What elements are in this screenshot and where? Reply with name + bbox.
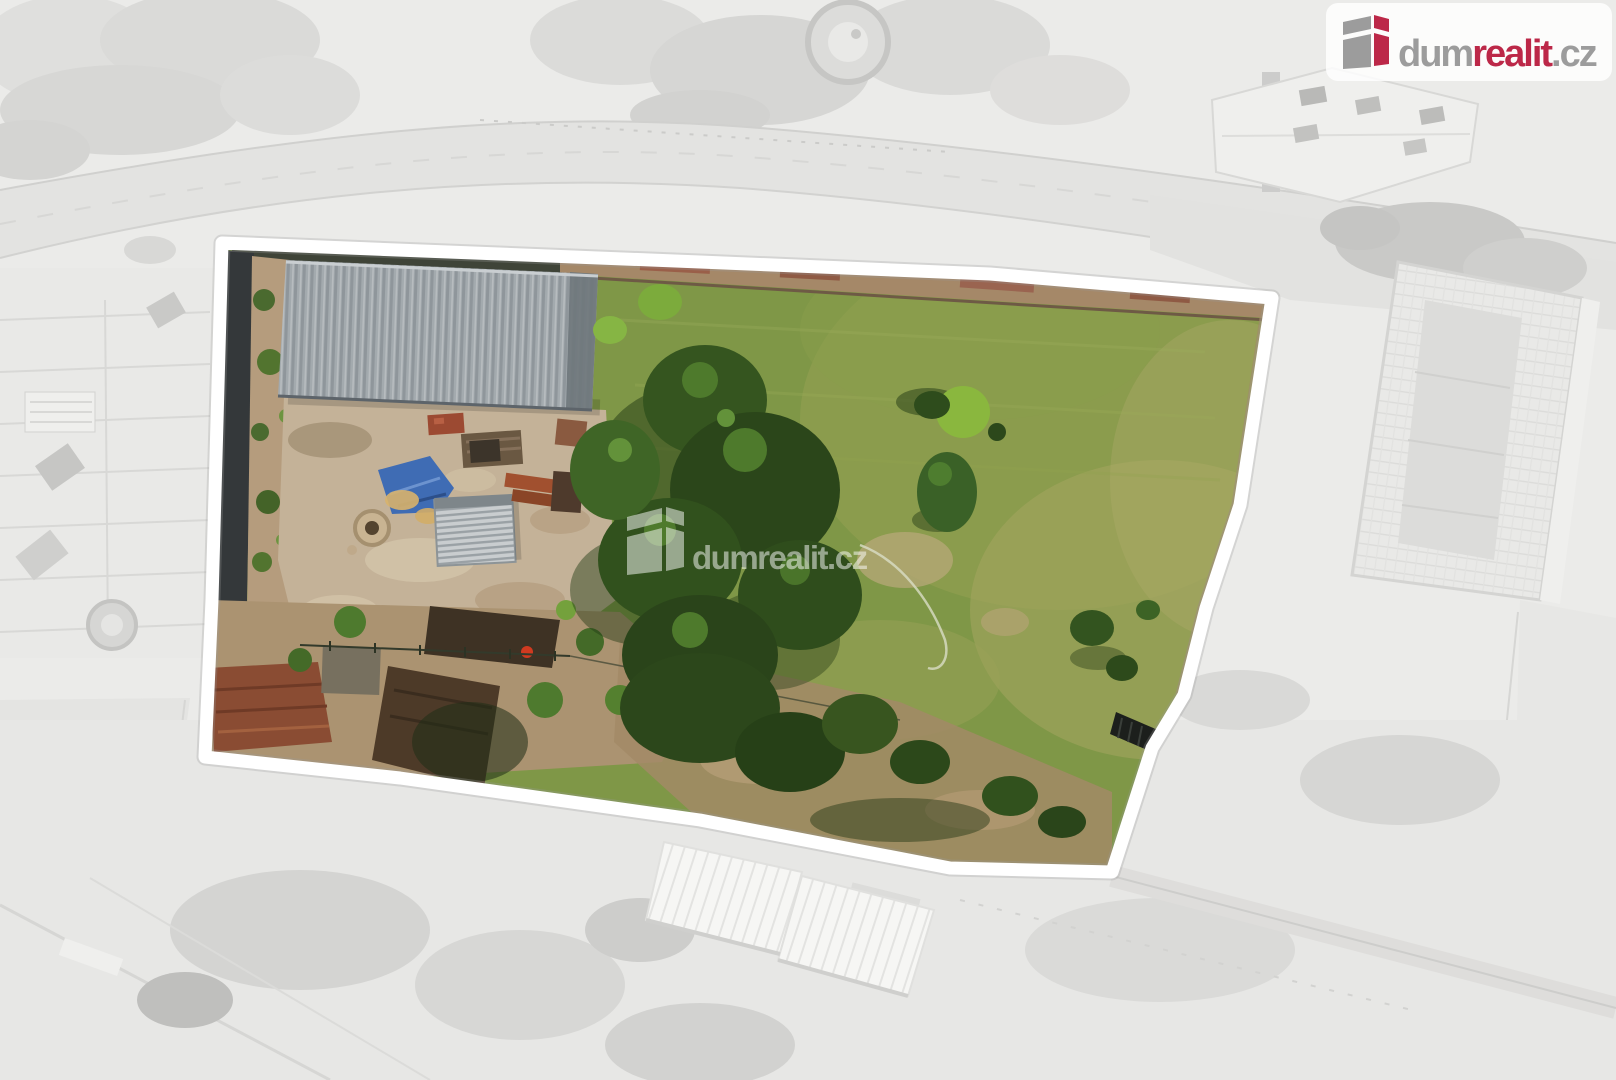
brick-stack: [427, 413, 464, 435]
aerial-photo: dumrealit.cz dumrealit.cz: [0, 0, 1616, 1080]
faded-vehicle: [137, 972, 233, 1028]
logo-text-dum: dum: [1398, 33, 1472, 75]
watermark-text: dumrealit.cz: [692, 539, 868, 576]
parcel-barn-roof: [278, 260, 598, 410]
logo-text: dumrealit.cz: [1398, 33, 1597, 75]
logo-text-realit: realit: [1472, 33, 1553, 75]
logo-text-cz: .cz: [1551, 33, 1597, 75]
garden-shed: [434, 494, 521, 566]
logo-house-icon: [1343, 15, 1389, 69]
red-object: [521, 646, 533, 658]
brand-logo: dumrealit.cz: [1326, 3, 1612, 81]
watermark-house-icon: [627, 507, 684, 575]
